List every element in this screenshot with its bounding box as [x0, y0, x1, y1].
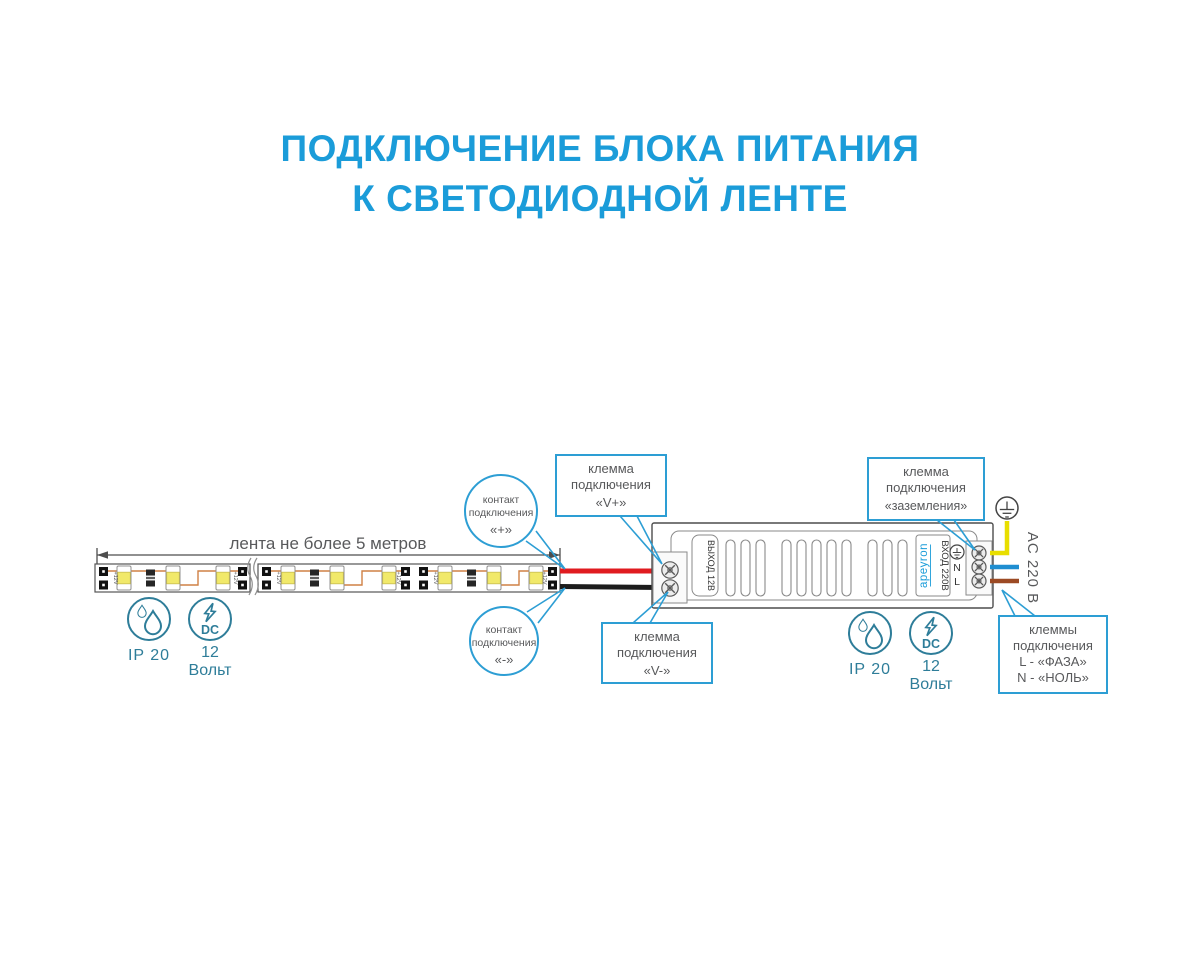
power-supply-unit: V+ V- ВЫХОД 12В apeyron ВХОД 220В	[652, 523, 993, 608]
callout-klemma-vplus: клемма подключения «V+»	[556, 455, 666, 564]
callout-pointer	[527, 588, 565, 623]
psu-input-label: ВХОД 220В	[939, 540, 950, 590]
terminal-screw-line	[972, 574, 986, 588]
svg-text:подключения: подключения	[886, 480, 966, 495]
psu-spec-icons	[849, 612, 953, 693]
strip-spec-icons	[128, 598, 232, 679]
callout-pointer	[526, 531, 565, 569]
callout-klemma-ac: клеммы подключения L - «ФАЗА» N - «НОЛЬ»	[999, 590, 1107, 693]
svg-text:клемма: клемма	[634, 629, 681, 644]
svg-text:клемма: клемма	[588, 461, 635, 476]
svg-text:+12V: +12V	[395, 572, 401, 585]
ac-wires: AC 220 В	[990, 497, 1041, 604]
callout-contact-minus: контакт подключения «-»	[470, 588, 565, 675]
wire-black-negative	[560, 587, 662, 588]
svg-text:«V+»: «V+»	[596, 495, 627, 510]
svg-text:+12V: +12V	[541, 572, 547, 585]
ground-symbol-icon	[996, 497, 1018, 519]
svg-text:клеммы: клеммы	[1029, 622, 1077, 637]
strip-length-label: лента не более 5 метров	[230, 534, 427, 553]
terminal-screw-vminus	[662, 580, 678, 596]
svg-text:подключения: подключения	[469, 507, 534, 519]
svg-text:«+»: «+»	[490, 522, 512, 537]
infographic-canvas: ПОДКЛЮЧЕНИЕ БЛОКА ПИТАНИЯ К СВЕТОДИОДНОЙ…	[0, 0, 1200, 960]
svg-text:контакт: контакт	[483, 494, 520, 506]
svg-text:+12V: +12V	[232, 572, 238, 585]
svg-text:контакт: контакт	[486, 624, 523, 636]
svg-text:+12V: +12V	[432, 572, 438, 585]
terminal-screw-neutral	[972, 560, 986, 574]
svg-text:подключения: подключения	[1013, 638, 1093, 653]
svg-text:подключения: подключения	[617, 645, 697, 660]
svg-text:+12V: +12V	[112, 572, 118, 585]
svg-text:подключения: подключения	[571, 477, 651, 492]
dc-wires	[560, 571, 662, 588]
svg-text:N - «НОЛЬ»: N - «НОЛЬ»	[1017, 670, 1089, 685]
psu-output-label: ВЫХОД 12В	[706, 540, 716, 591]
psu-brand-label: apeyron	[918, 543, 930, 588]
wiring-diagram: IP 20 DC 12 Вольт лента не более 5 метро…	[0, 0, 1200, 960]
svg-text:«V-»: «V-»	[644, 663, 671, 678]
svg-text:«-»: «-»	[495, 652, 514, 667]
led-strip: +12V +12V +12V +12V +12V +12V	[95, 558, 560, 595]
svg-text:L - «ФАЗА»: L - «ФАЗА»	[1019, 654, 1086, 669]
svg-text:+12V: +12V	[275, 572, 281, 585]
svg-text:«заземления»: «заземления»	[885, 499, 968, 513]
line-terminal-label: L	[954, 576, 960, 588]
svg-text:подключения: подключения	[472, 637, 537, 649]
terminal-screw-vplus	[662, 562, 678, 578]
svg-text:клемма: клемма	[903, 464, 950, 479]
ac-voltage-label: AC 220 В	[1024, 532, 1041, 604]
neutral-terminal-label: N	[953, 562, 961, 574]
